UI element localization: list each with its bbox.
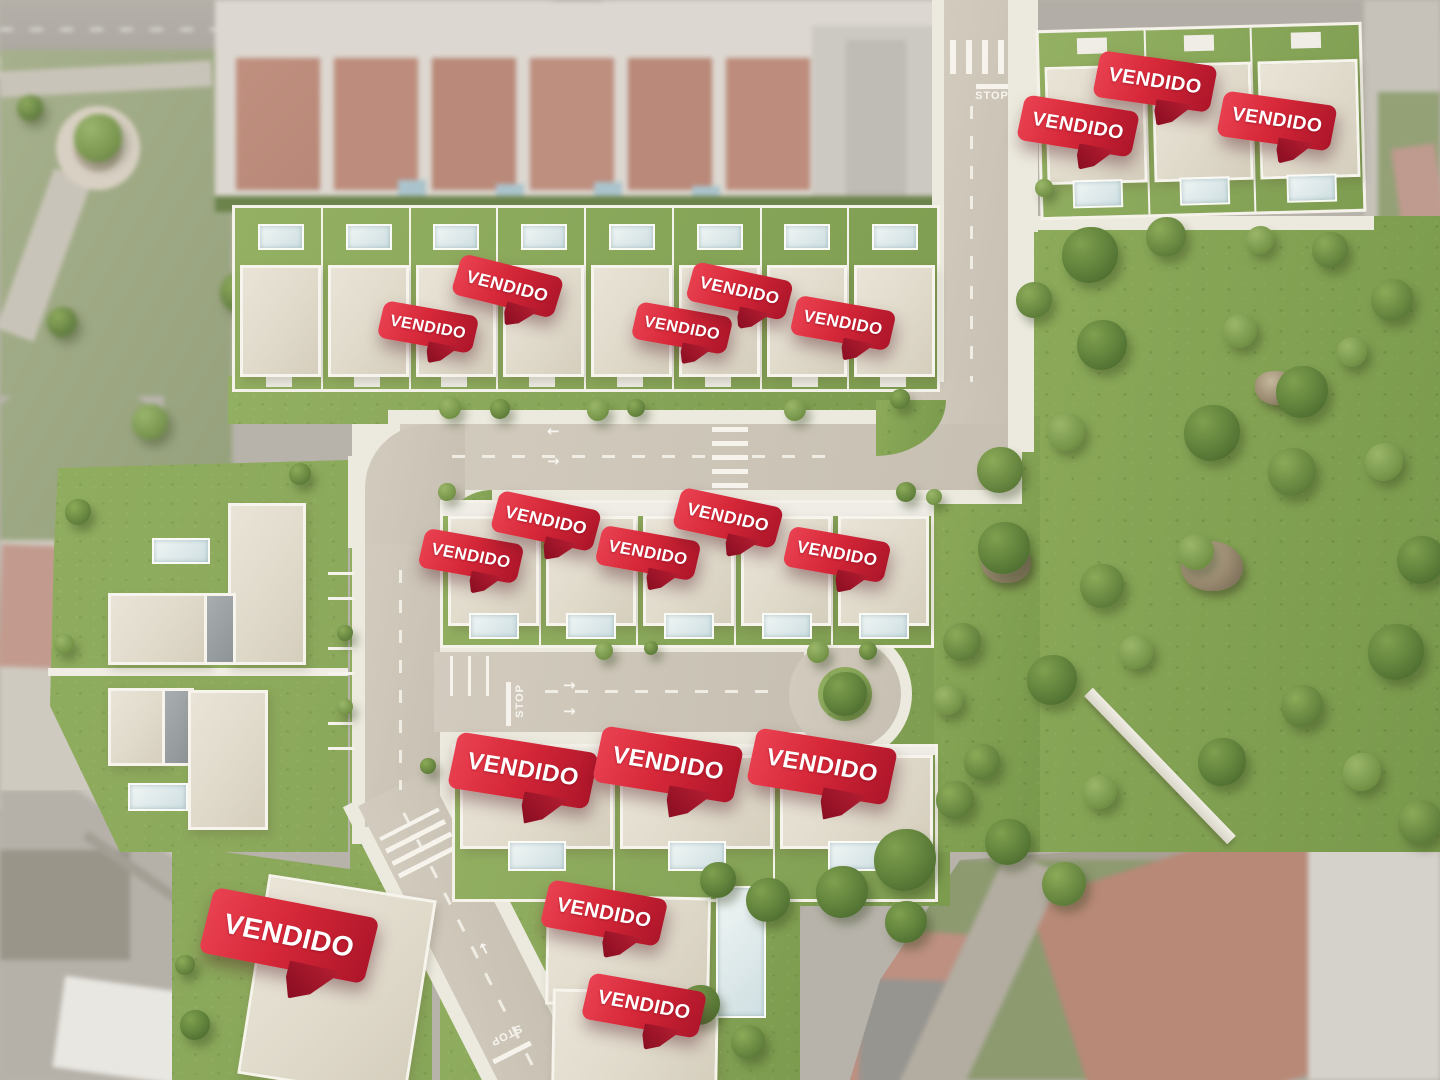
sold-banner-label: VENDIDO <box>610 741 727 786</box>
parking-tick <box>328 722 354 725</box>
crosswalk-north <box>950 40 1008 74</box>
tree-icon <box>1398 800 1440 844</box>
sold-banner-label: VENDIDO <box>764 743 881 788</box>
existing-roof <box>334 58 418 190</box>
lane-arrow-marking: → <box>563 676 576 694</box>
house-roof <box>240 265 321 377</box>
lane-dashes-north <box>970 106 973 382</box>
lane-arrow-marking: ← <box>547 422 560 440</box>
site-plan: STOPSTOPSTOP←→→→↑VENDIDOVENDIDOVENDIDOVE… <box>0 0 1440 1080</box>
lane-dashes-lower <box>545 690 780 693</box>
lane-arrow-marking: → <box>547 452 560 470</box>
house-unit[interactable] <box>586 208 674 389</box>
parking-tick <box>450 656 453 696</box>
sold-banner-label: VENDIDO <box>595 987 692 1026</box>
pool <box>508 841 566 871</box>
pool <box>859 613 909 639</box>
existing-roof <box>432 58 516 190</box>
sold-banner-label: VENDIDO <box>503 502 590 540</box>
stop-line-lower <box>506 682 511 726</box>
parcel-divider <box>48 668 348 676</box>
parking-tick <box>486 656 489 696</box>
sold-banner-label: VENDIDO <box>1030 107 1126 144</box>
villa-roof-gray-section <box>204 593 236 665</box>
sold-banner-label: VENDIDO <box>801 306 884 339</box>
stop-line-north <box>976 84 1008 89</box>
hood-house-white <box>1308 826 1440 1080</box>
sold-banner-label: VENDIDO <box>642 312 722 344</box>
sold-banner-label: VENDIDO <box>1106 64 1203 100</box>
roof-terrace <box>1184 35 1214 52</box>
lane-dashes-west <box>399 570 402 790</box>
pool <box>784 224 830 250</box>
parking-tick <box>328 672 354 675</box>
pool <box>609 224 655 250</box>
stop-marking: STOP <box>514 679 526 723</box>
house-unit[interactable] <box>235 208 323 389</box>
villa-roof[interactable] <box>108 593 210 665</box>
sold-banner-label: VENDIDO <box>463 266 550 306</box>
existing-roof <box>628 58 712 190</box>
sold-banner-label: VENDIDO <box>1230 104 1324 138</box>
sold-banner-label: VENDIDO <box>697 273 781 309</box>
sold-banner-label: VENDIDO <box>388 311 468 343</box>
parking-tick <box>328 572 354 575</box>
construction-patch <box>0 850 130 960</box>
existing-roof <box>236 58 320 190</box>
housing-block-top-row <box>232 205 940 392</box>
parking-tick <box>328 747 354 750</box>
villa-pool <box>152 538 210 564</box>
villa-roof[interactable] <box>188 690 268 830</box>
parking-tick <box>328 597 354 600</box>
tree-icon <box>816 866 868 918</box>
sidewalk-west-upper <box>348 456 360 548</box>
sold-banner-label: VENDIDO <box>606 536 689 569</box>
pool <box>1179 176 1230 205</box>
sold-banner-label: VENDIDO <box>220 907 358 964</box>
existing-roof <box>530 58 614 190</box>
sold-banner-label: VENDIDO <box>685 499 772 537</box>
parking-tick <box>468 656 471 696</box>
stop-marking: STOP <box>970 90 1014 102</box>
villa-pool <box>128 783 188 811</box>
sold-banner-label: VENDIDO <box>554 893 653 932</box>
villa-roof[interactable] <box>108 688 168 766</box>
roof-terrace <box>1290 32 1320 49</box>
pool <box>433 224 479 250</box>
lane-dashes-avenue <box>452 455 832 458</box>
pool <box>1073 179 1124 208</box>
sold-banner-label: VENDIDO <box>429 539 512 572</box>
pool <box>664 613 714 639</box>
sold-banner-label: VENDIDO <box>465 747 582 792</box>
villa-roof[interactable] <box>228 503 306 665</box>
pool <box>697 224 743 250</box>
pool <box>566 613 616 639</box>
parking-tick <box>328 647 354 650</box>
house-unit[interactable] <box>849 208 937 389</box>
lane-arrow-marking: → <box>563 702 576 720</box>
tree-icon <box>1397 536 1440 584</box>
pool <box>469 613 519 639</box>
pool <box>762 613 812 639</box>
existing-gray-roof <box>846 40 906 200</box>
pool <box>872 224 918 250</box>
pool <box>521 224 567 250</box>
sold-banner-label: VENDIDO <box>795 537 880 571</box>
crosswalk-avenue <box>712 426 748 488</box>
pool <box>346 224 392 250</box>
existing-roof <box>726 58 810 190</box>
pool <box>258 224 304 250</box>
pool <box>1286 173 1337 202</box>
house-unit[interactable] <box>323 208 411 389</box>
